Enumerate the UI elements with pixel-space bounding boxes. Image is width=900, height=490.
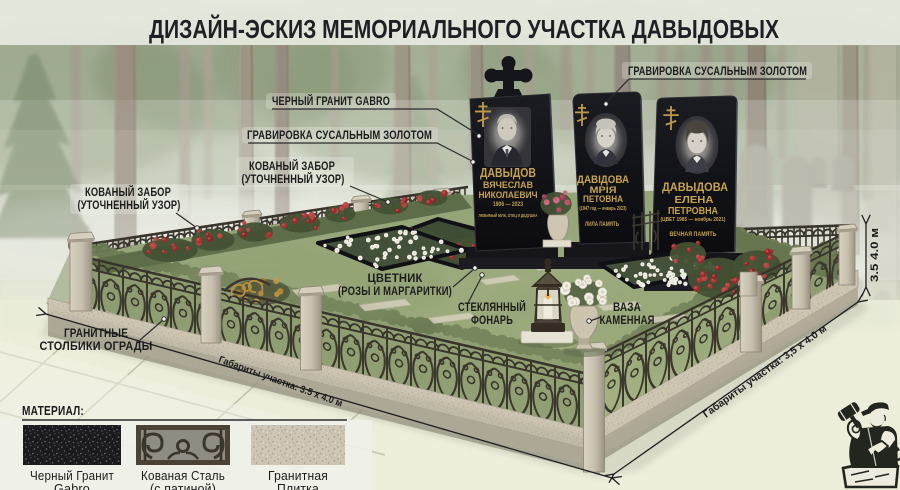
svg-text:(1947 год — январь 2023): (1947 год — январь 2023) [580,206,627,212]
svg-text:ЛИЛА ПАМЯТЬ: ЛИЛА ПАМЯТЬ [585,222,620,228]
svg-text:(РОЗЫ И МАРГАРИТКИ): (РОЗЫ И МАРГАРИТКИ) [338,286,452,298]
svg-text:Черный Гранит: Черный Гранит [30,469,114,483]
svg-text:3.5 4.0 м: 3.5 4.0 м [869,228,881,282]
svg-text:ГРАВИРОВКА СУСАЛЬНЫМ ЗОЛОТОМ: ГРАВИРОВКА СУСАЛЬНЫМ ЗОЛОТОМ [247,130,432,142]
svg-text:ПЕТРОВНА: ПЕТРОВНА [668,206,718,217]
svg-text:ВАЗА: ВАЗА [613,302,641,314]
svg-text:КОВАНЫЙ ЗАБОР: КОВАНЫЙ ЗАБОР [85,186,171,199]
svg-text:Кованая Сталь: Кованая Сталь [141,469,225,483]
svg-text:ДИЗАЙН-ЭСКИЗ МЕМОРИАЛЬНОГО УЧА: ДИЗАЙН-ЭСКИЗ МЕМОРИАЛЬНОГО УЧАСТКА ДАВЫД… [149,14,780,44]
svg-text:(с патиной): (с патиной) [150,482,216,490]
svg-text:ЕЛЕНА: ЕЛЕНА [675,195,714,206]
svg-text:ПЕТОВНА: ПЕТОВНА [583,194,623,204]
svg-text:ЛЮБИМЫЙ МУЖ, ОТЕЦ И ДЕДУШКА: ЛЮБИМЫЙ МУЖ, ОТЕЦ И ДЕДУШКА [479,211,539,218]
svg-text:ВЕЧНАЯ ПАМЯТЬ: ВЕЧНАЯ ПАМЯТЬ [670,232,718,238]
svg-text:НИКОЛАЕВИЧ: НИКОЛАЕВИЧ [479,190,538,200]
svg-text:ГРАВИРОВКА СУСАЛЬНЫМ ЗОЛОТОМ: ГРАВИРОВКА СУСАЛЬНЫМ ЗОЛОТОМ [628,66,807,78]
svg-text:КАМЕННАЯ: КАМЕННАЯ [600,315,655,327]
svg-text:ВЯЧЕСЛАВ: ВЯЧЕСЛАВ [483,180,533,190]
svg-text:КОВАНЫЙ ЗАБОР: КОВАНЫЙ ЗАБОР [249,160,335,173]
svg-text:ДАВЫДОВА: ДАВЫДОВА [662,180,728,194]
svg-text:СТОЛБИКИ ОГРАДЫ: СТОЛБИКИ ОГРАДЫ [40,341,153,353]
svg-text:(ЦВЕТ 1985 — ноябрь 2021): (ЦВЕТ 1985 — ноябрь 2021) [661,216,726,223]
svg-text:ЧЕРНЫЙ ГРАНИТ GABRO: ЧЕРНЫЙ ГРАНИТ GABRO [272,95,390,108]
svg-text:1906 — 2023: 1906 — 2023 [493,201,523,208]
svg-text:Гранитная: Гранитная [268,469,328,483]
svg-text:ФОНАРЬ: ФОНАРЬ [471,315,513,327]
svg-text:(УТОЧНЕННЫЙ УЗОР): (УТОЧНЕННЫЙ УЗОР) [78,199,181,212]
svg-text:ГРАНИТНЫЕ: ГРАНИТНЫЕ [64,328,128,340]
svg-text:ДАВЫДОВ: ДАВЫДОВ [480,166,536,180]
svg-text:Gabro: Gabro [54,482,90,490]
svg-text:ЦВЕТНИК: ЦВЕТНИК [368,273,424,285]
svg-text:МАТЕРИАЛ:: МАТЕРИАЛ: [22,403,84,418]
svg-text:(УТОЧНЕННЫЙ УЗОР): (УТОЧНЕННЫЙ УЗОР) [242,173,345,186]
svg-text:Плитка: Плитка [277,482,319,490]
